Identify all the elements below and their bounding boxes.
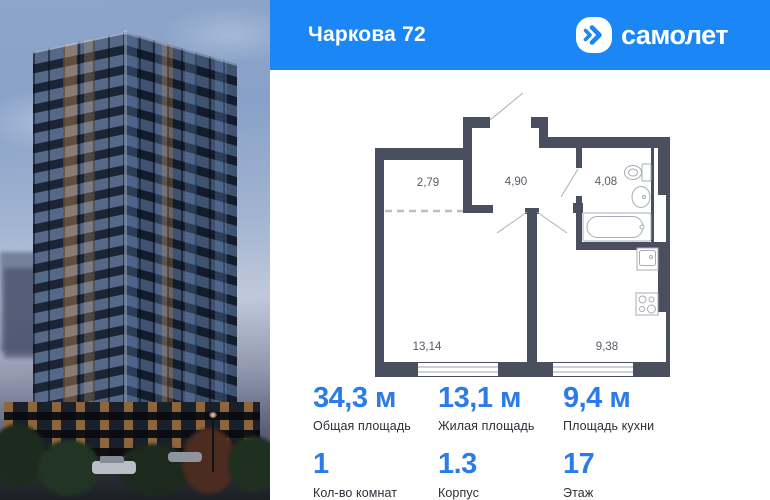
room-area-label: 9,38 — [596, 341, 618, 353]
stat-label: Корпус — [438, 486, 563, 500]
entrance-door-swing — [490, 93, 523, 120]
tree — [38, 440, 100, 496]
living-door-swing — [497, 212, 527, 233]
sink-icon — [632, 187, 650, 208]
stat-label: Жилая площадь — [438, 419, 563, 433]
tower-facade-right — [125, 32, 237, 456]
header-bar: Чаркова 72 самолет — [270, 0, 770, 70]
stat-value: 1 — [313, 449, 438, 479]
bathtub-icon — [583, 213, 651, 241]
page-title: Чаркова 72 — [308, 23, 426, 47]
bathroom-door-swing — [561, 169, 578, 197]
stat-label: Кол-во комнат — [313, 486, 438, 500]
floorplan-walls — [375, 117, 670, 377]
kitchen-door-swing — [537, 212, 567, 233]
tower-corner-edge — [124, 30, 127, 430]
listing-card: Чаркова 72 самолет — [0, 0, 770, 500]
samolet-arrow-icon — [576, 17, 612, 53]
stat-value: 1.3 — [438, 449, 563, 479]
building-photo — [0, 0, 270, 500]
window-icon — [418, 363, 498, 376]
brand-wordmark: самолет — [621, 20, 728, 51]
room-area-label: 4,08 — [595, 176, 617, 188]
kitchen-sink-icon — [637, 248, 658, 270]
stat-label: Площадь кухни — [563, 419, 688, 433]
car — [168, 452, 202, 462]
floorplan-drawing: 2,79 4,90 4,08 13,14 9,38 — [370, 85, 700, 385]
toilet-icon — [625, 164, 652, 181]
stat-value: 34,3 м — [313, 383, 438, 413]
car — [92, 461, 136, 474]
stats-grid: 34,3 м Общая площадь 13,1 м Жилая площад… — [313, 383, 743, 500]
info-panel: Чаркова 72 самолет — [270, 0, 770, 500]
stat-value: 13,1 м — [438, 383, 563, 413]
stat-value: 17 — [563, 449, 688, 479]
window-icon — [553, 363, 633, 376]
stat-rooms: 1 Кол-во комнат — [313, 449, 438, 499]
room-area-label: 13,14 — [413, 341, 442, 353]
floorplan: 2,79 4,90 4,08 13,14 9,38 — [370, 85, 700, 385]
stat-building: 1.3 Корпус — [438, 449, 563, 499]
stat-total-area: 34,3 м Общая площадь — [313, 383, 438, 433]
stat-kitchen-area: 9,4 м Площадь кухни — [563, 383, 688, 433]
stat-living-area: 13,1 м Жилая площадь — [438, 383, 563, 433]
stove-icon — [636, 293, 658, 315]
street-lamp — [212, 416, 214, 472]
room-area-label: 4,90 — [505, 176, 527, 188]
stat-label: Общая площадь — [313, 419, 438, 433]
tower-facade-left — [33, 32, 125, 444]
brand-logo: самолет — [576, 17, 728, 53]
stat-value: 9,4 м — [563, 383, 688, 413]
stat-floor: 17 Этаж — [563, 449, 688, 499]
stat-label: Этаж — [563, 486, 688, 500]
room-area-label: 2,79 — [417, 177, 439, 189]
